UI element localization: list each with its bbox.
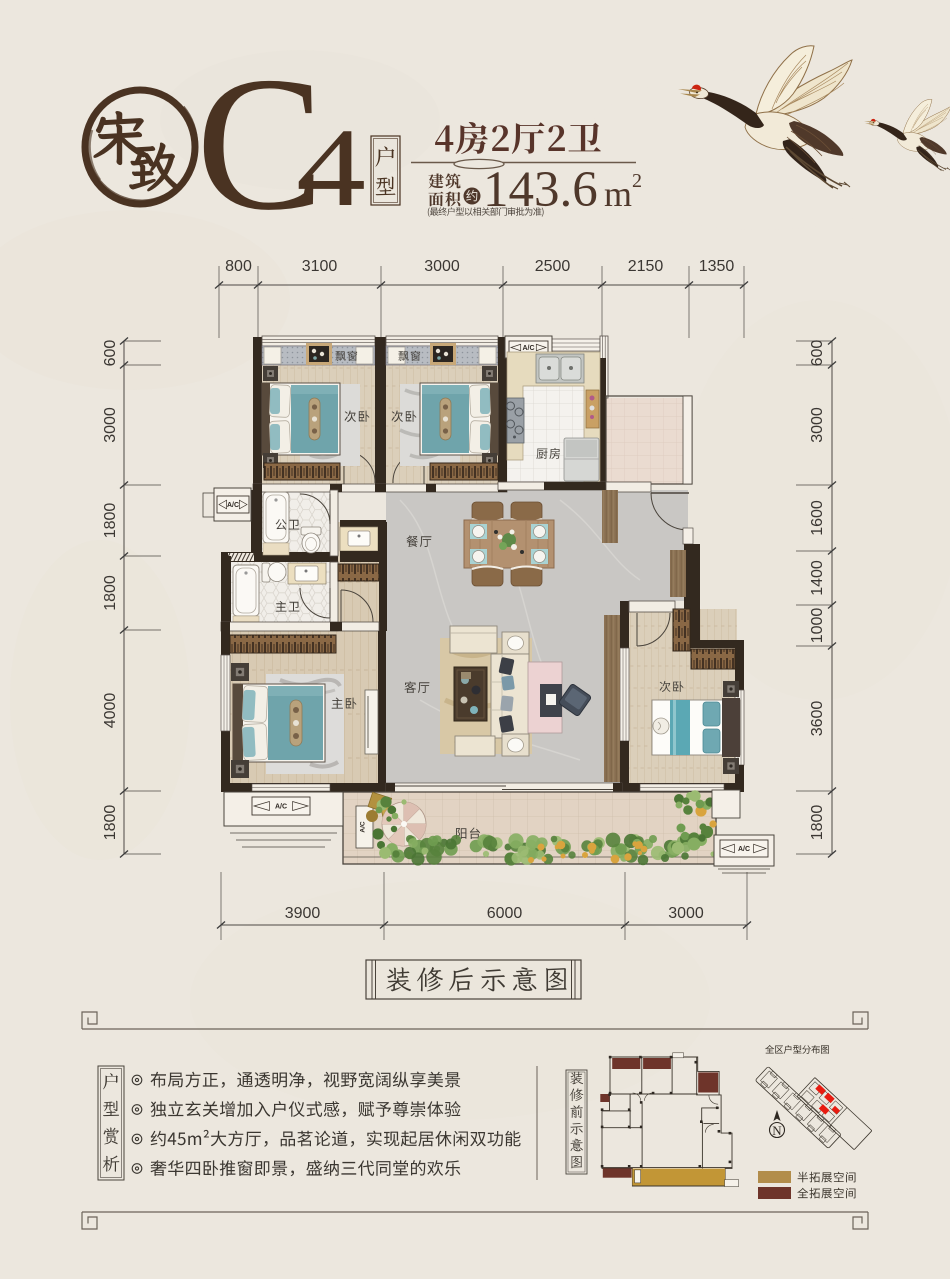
svg-text:A/C: A/C <box>522 345 534 352</box>
svg-text:4000: 4000 <box>102 693 119 729</box>
svg-text:N: N <box>772 1123 782 1138</box>
svg-text:1800: 1800 <box>102 575 119 611</box>
svg-text:2500: 2500 <box>535 258 571 275</box>
svg-text:1000: 1000 <box>809 608 826 644</box>
svg-text:3000: 3000 <box>102 407 119 443</box>
svg-text:3000: 3000 <box>809 407 826 443</box>
svg-text:A/C: A/C <box>275 804 287 811</box>
svg-text:800: 800 <box>225 258 252 275</box>
svg-text:A/C: A/C <box>227 502 239 509</box>
svg-text:1800: 1800 <box>809 805 826 841</box>
svg-text:m: m <box>604 174 632 214</box>
svg-text:6000: 6000 <box>487 905 523 922</box>
svg-text:1600: 1600 <box>809 500 826 536</box>
svg-text:3100: 3100 <box>302 258 338 275</box>
svg-text:3900: 3900 <box>285 905 321 922</box>
svg-text:1800: 1800 <box>102 503 119 539</box>
svg-text:4: 4 <box>296 106 366 230</box>
svg-text:A/C: A/C <box>360 821 367 833</box>
svg-text:3600: 3600 <box>809 701 826 737</box>
svg-text:1800: 1800 <box>102 805 119 841</box>
svg-text:3000: 3000 <box>668 905 704 922</box>
svg-text:600: 600 <box>102 340 119 367</box>
svg-text:600: 600 <box>809 340 826 367</box>
svg-text:A/C: A/C <box>738 846 750 853</box>
svg-text:1400: 1400 <box>809 560 826 596</box>
svg-text:2: 2 <box>632 170 642 192</box>
svg-text:3000: 3000 <box>424 258 460 275</box>
svg-text:2150: 2150 <box>628 258 664 275</box>
svg-text:143.6: 143.6 <box>483 162 598 218</box>
svg-text:1350: 1350 <box>699 258 735 275</box>
